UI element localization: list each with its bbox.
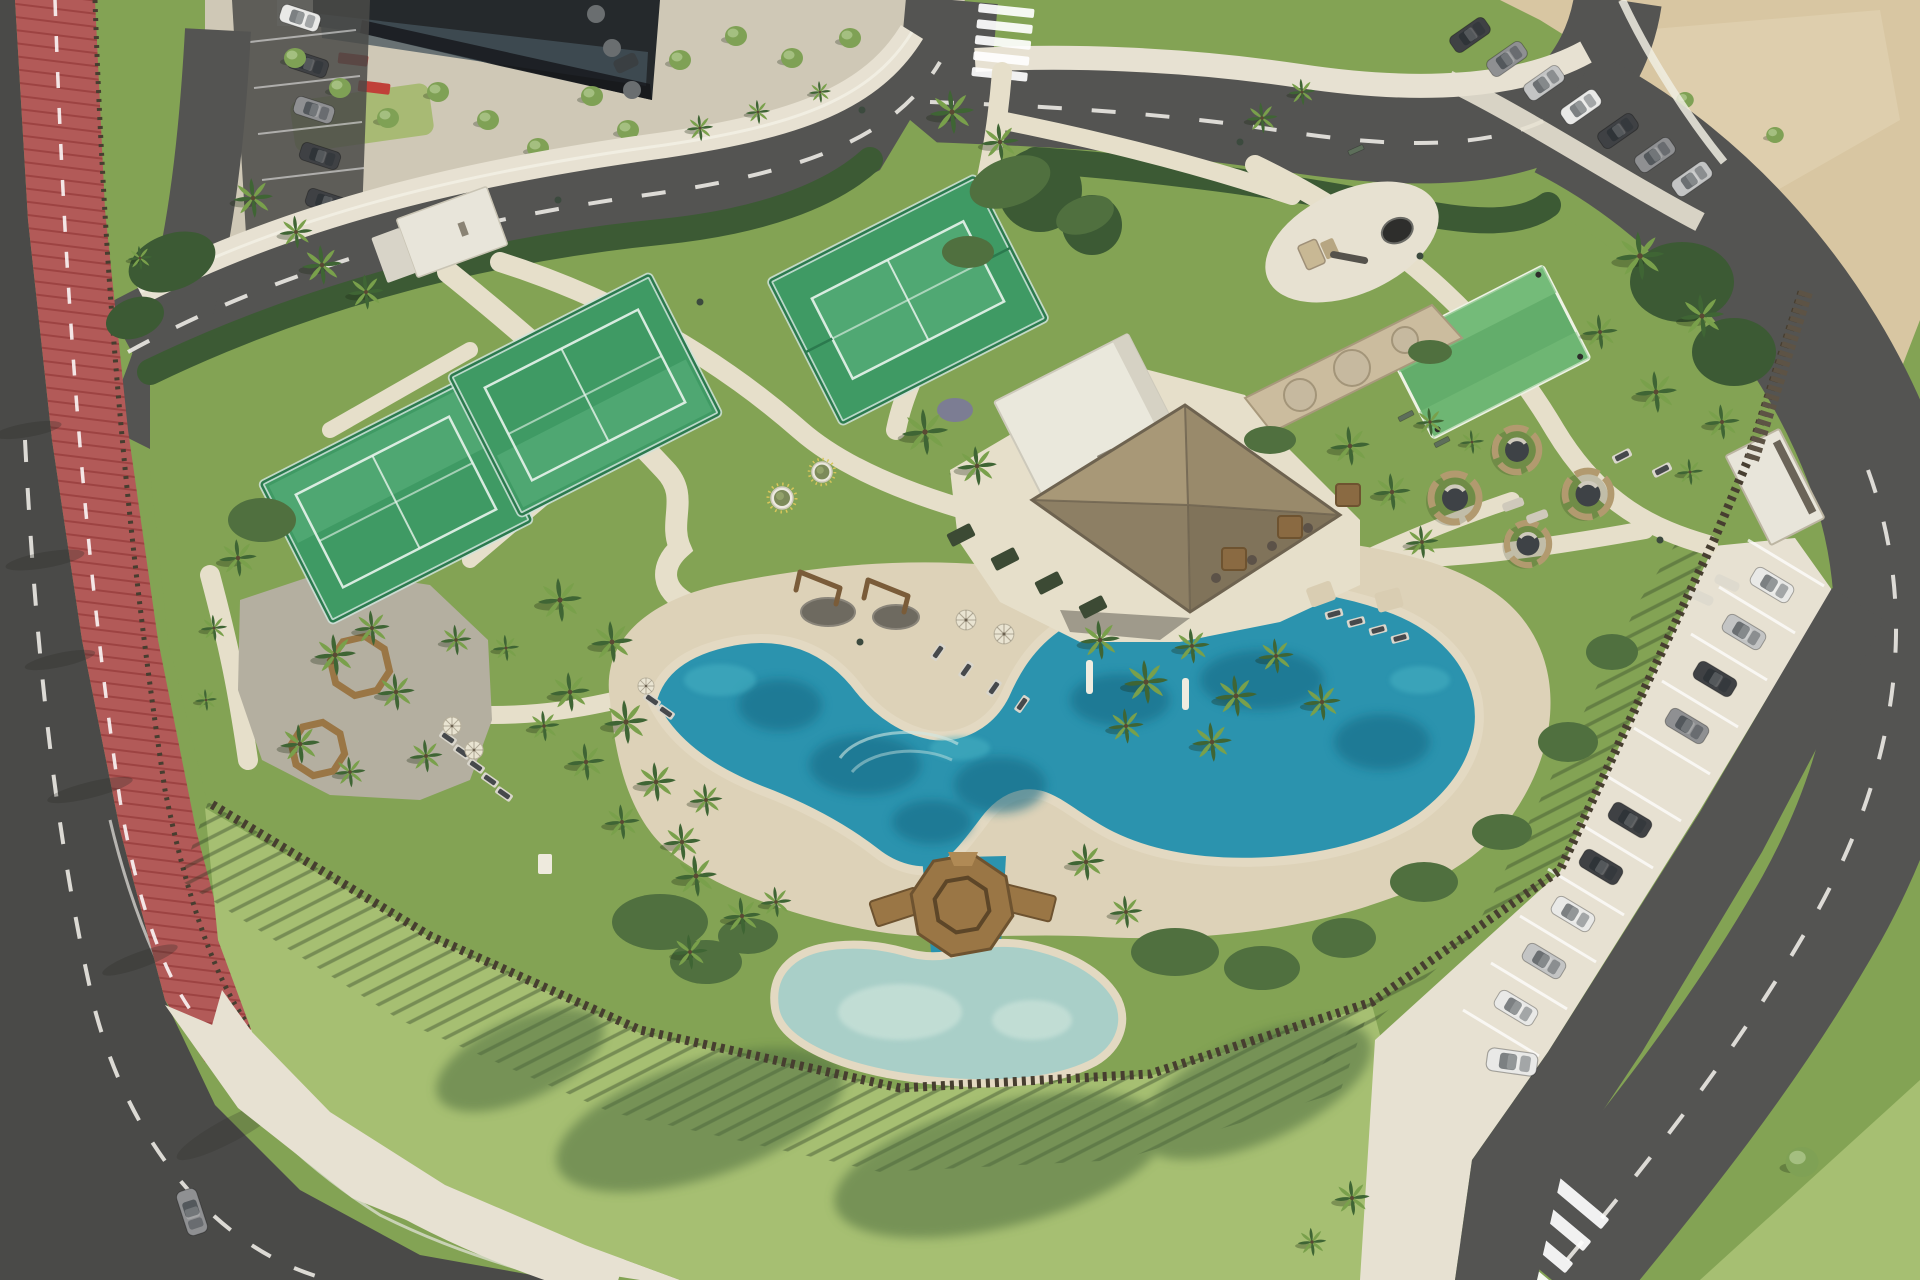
closed-umbrella <box>1182 678 1189 710</box>
closed-umbrella <box>1086 660 1093 694</box>
scene-canvas <box>0 0 1920 1280</box>
pool-sign <box>538 854 552 874</box>
aerial-resort-render <box>0 0 1920 1280</box>
